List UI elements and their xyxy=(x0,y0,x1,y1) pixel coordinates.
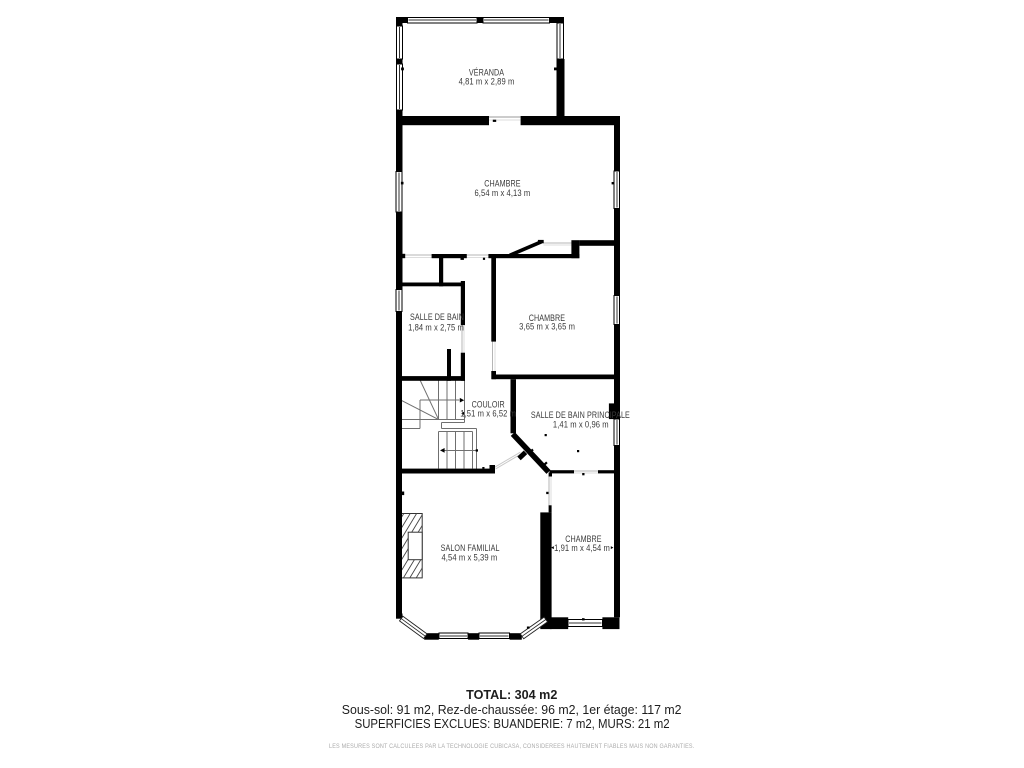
svg-text:1,51 m x 6,52 m: 1,51 m x 6,52 m xyxy=(460,409,516,419)
svg-text:SALLE DE BAIN: SALLE DE BAIN xyxy=(410,312,464,322)
svg-text:1,91 m x 4,54 m: 1,91 m x 4,54 m xyxy=(554,544,610,554)
svg-text:4,54 m x 5,39 m: 4,54 m x 5,39 m xyxy=(441,553,497,563)
svg-text:CHAMBRE: CHAMBRE xyxy=(484,178,521,188)
svg-text:3,65 m x 3,65 m: 3,65 m x 3,65 m xyxy=(519,322,575,332)
svg-text:SALLE DE BAIN PRINCIPALE: SALLE DE BAIN PRINCIPALE xyxy=(531,410,630,420)
svg-text:SALON FAMILIAL: SALON FAMILIAL xyxy=(441,543,500,553)
svg-text:4,81 m x 2,89 m: 4,81 m x 2,89 m xyxy=(459,77,515,87)
svg-text:1,84 m x 2,75 m: 1,84 m x 2,75 m xyxy=(408,323,464,333)
svg-text:1,41 m x 0,96 m: 1,41 m x 0,96 m xyxy=(553,420,609,430)
svg-text:6,54 m x 4,13 m: 6,54 m x 4,13 m xyxy=(474,189,530,199)
